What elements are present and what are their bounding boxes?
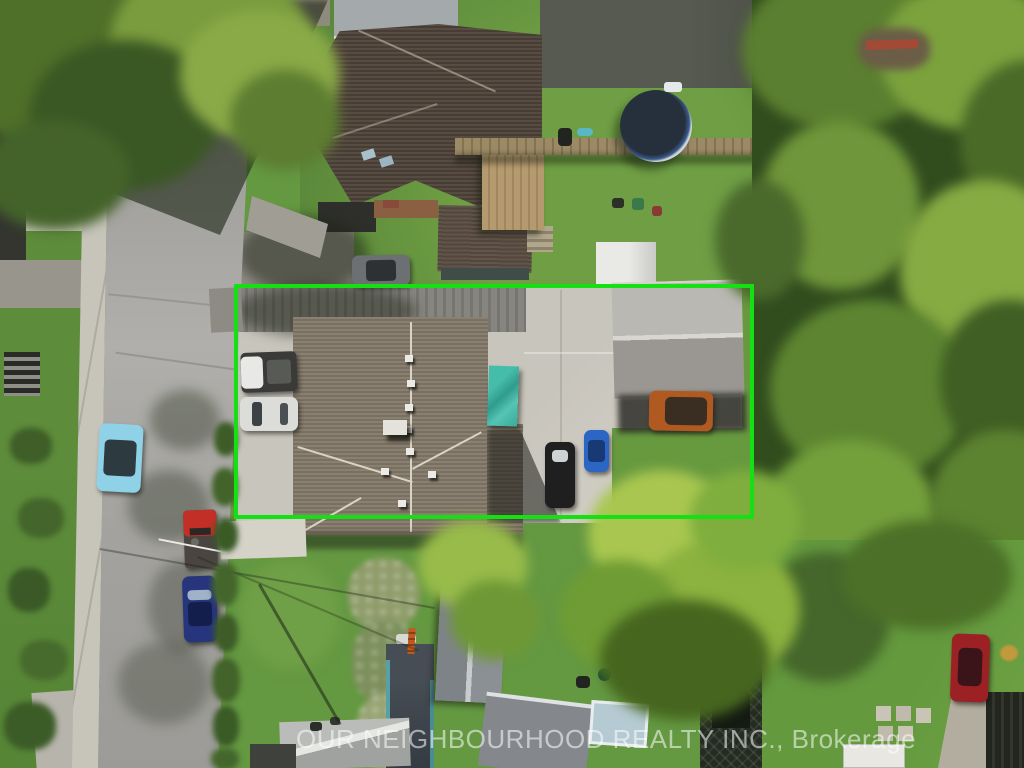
neighbor-chimney — [383, 200, 399, 208]
boulevard-hedge — [212, 658, 240, 702]
pool-ladder — [664, 82, 682, 92]
paving-stone — [876, 706, 891, 721]
paving-stone — [916, 708, 931, 723]
dark-blue-car-windshield — [187, 590, 211, 601]
street-shadow-dapple — [150, 390, 220, 450]
left-hedge — [4, 702, 56, 750]
left-driveway — [0, 260, 86, 308]
boulevard-hedge — [212, 562, 238, 606]
patio-item-teal — [577, 128, 593, 136]
paving-stone — [896, 706, 911, 721]
tree-canopy — [230, 70, 340, 170]
property-boundary-outline — [234, 284, 754, 519]
fence-shadow — [455, 154, 767, 164]
gold-ornament — [1000, 645, 1018, 661]
boulevard-hedge — [214, 518, 238, 552]
grey-car-windows — [366, 260, 396, 282]
dark-building-right — [986, 692, 1024, 768]
above-ground-pool — [620, 90, 692, 162]
red-pickup-window — [190, 528, 211, 536]
brokerage-watermark: OUR NEIGHBOURHOOD REALTY INC., Brokerage — [296, 724, 816, 755]
boulevard-hedge — [213, 706, 239, 746]
red-pickup-truck — [183, 509, 218, 568]
lawn-chair-red — [652, 206, 662, 216]
tree-shade-under — [600, 600, 770, 720]
yard-item-dark — [612, 198, 624, 208]
left-hedge — [8, 568, 50, 612]
red-car — [950, 633, 990, 702]
grey-car — [352, 254, 411, 286]
left-hedge — [18, 498, 64, 538]
cyan-car — [96, 423, 143, 493]
red-car-glass — [957, 648, 982, 687]
cyan-car-windows — [103, 439, 137, 477]
boulevard-hedge — [214, 614, 238, 652]
tree-overhang — [842, 520, 1012, 630]
left-hedge — [20, 640, 68, 680]
lawn-chair-green — [632, 198, 644, 210]
bright-tree-left — [450, 580, 540, 660]
neighbor-addition-awning — [441, 268, 529, 280]
left-house-stairs — [4, 352, 40, 396]
privacy-fence — [455, 138, 767, 155]
red-roof-strip — [866, 39, 918, 50]
tree — [715, 180, 805, 300]
street-shadow-dapple — [118, 642, 210, 724]
patio-bbq-items — [576, 676, 590, 688]
boulevard-hedge — [211, 748, 239, 768]
white-house-dark-wing — [250, 744, 296, 768]
aerial-photo: OUR NEIGHBOURHOOD REALTY INC., Brokerage — [0, 0, 1024, 768]
left-hedge — [10, 428, 52, 464]
bbq-grill — [558, 128, 572, 146]
dark-blue-car-roof — [188, 602, 213, 627]
white-canopy-tent — [596, 242, 656, 287]
